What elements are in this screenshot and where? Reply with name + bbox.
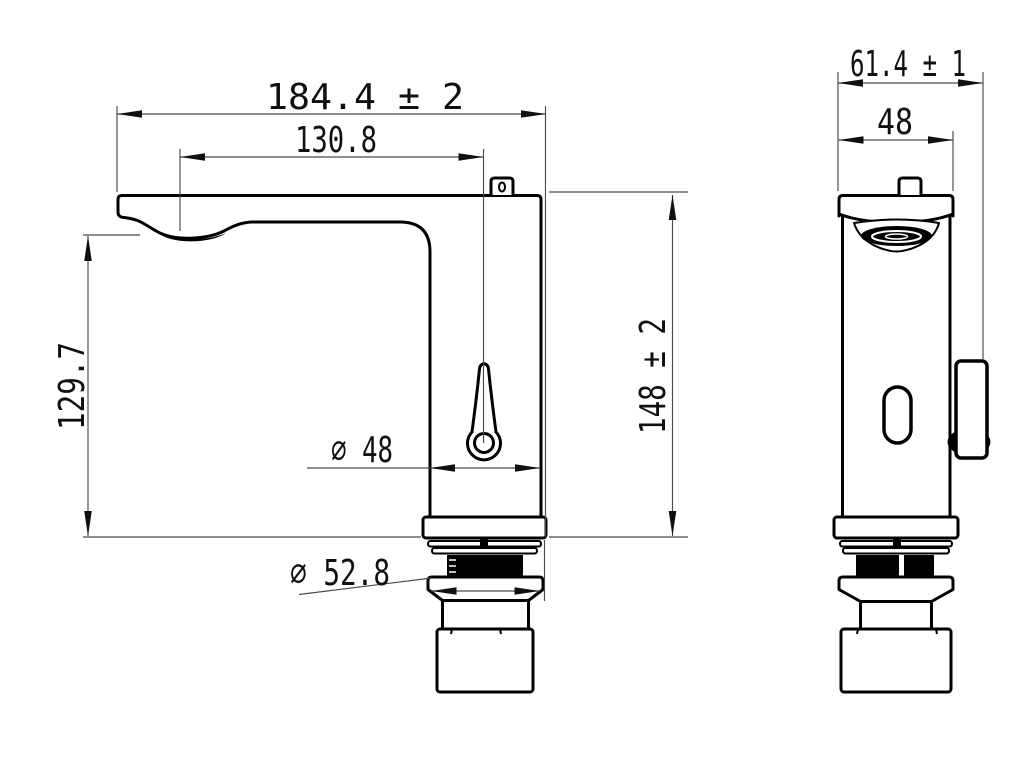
- dim-label: ∅ 48: [331, 430, 393, 471]
- arrowhead: [669, 511, 677, 536]
- tailpiece-side: [841, 629, 951, 692]
- dim-label: 129.7: [52, 342, 93, 430]
- arrowhead: [521, 110, 546, 118]
- arrowhead: [839, 136, 864, 144]
- dim-label: 61.4 ± 1: [850, 44, 966, 85]
- mounting-flange-side: [839, 577, 953, 602]
- dim-body-width: 48: [839, 102, 954, 191]
- side-lever: [956, 361, 987, 458]
- gasket-lower-side: [843, 548, 949, 554]
- arrowhead: [84, 236, 92, 261]
- dim-label: 184.4 ± 2: [266, 77, 464, 118]
- technical-drawing-canvas: 184.4 ± 2 130.8 129.7 148 ± 2 ∅ 48: [0, 0, 1024, 768]
- arrowhead: [459, 153, 484, 161]
- base-plate-side: [834, 517, 958, 538]
- arrowhead: [430, 464, 455, 472]
- gasket-notch-side: [893, 539, 901, 547]
- dim-body-diameter: ∅ 48: [307, 430, 540, 472]
- dim-label: 130.8: [295, 120, 377, 161]
- gasket-notch-front: [480, 539, 488, 547]
- sensor-window-side: [884, 387, 911, 443]
- base-plate-front: [423, 517, 546, 538]
- tailpiece-tick-front-1: [451, 629, 452, 634]
- dim-label: ∅ 52.8: [290, 553, 390, 594]
- tailpiece-tick-side-1: [857, 629, 858, 634]
- dim-overall-height: 148 ± 2: [549, 192, 688, 537]
- top-button-side: [899, 178, 921, 195]
- faucet-front-outline: [118, 196, 541, 518]
- tailpiece-tick-front-2: [500, 629, 501, 634]
- head-outline-side: [839, 196, 953, 217]
- dim-spout-height: 129.7: [52, 235, 421, 537]
- arrowhead: [928, 136, 953, 144]
- dim-spout-reach: 130.8: [180, 120, 484, 443]
- thread-section-front: [447, 555, 523, 577]
- arrowhead: [84, 511, 92, 536]
- tailpiece-front: [437, 629, 533, 692]
- dim-label: 148 ± 2: [633, 318, 674, 434]
- side-view: [834, 178, 991, 692]
- dim-label: 48: [877, 102, 913, 143]
- thread-section-side-right: [904, 555, 934, 577]
- arrowhead: [515, 464, 540, 472]
- arrowhead: [180, 153, 205, 161]
- mounting-flange-front: [428, 577, 543, 601]
- gasket-lower-front: [432, 548, 537, 554]
- arrowhead: [117, 110, 142, 118]
- tailpiece-tick-side-2: [936, 629, 937, 634]
- arrowhead: [669, 195, 677, 220]
- faucet-dimension-drawing: 184.4 ± 2 130.8 129.7 148 ± 2 ∅ 48: [0, 0, 1024, 768]
- thread-section-side-left: [856, 555, 899, 577]
